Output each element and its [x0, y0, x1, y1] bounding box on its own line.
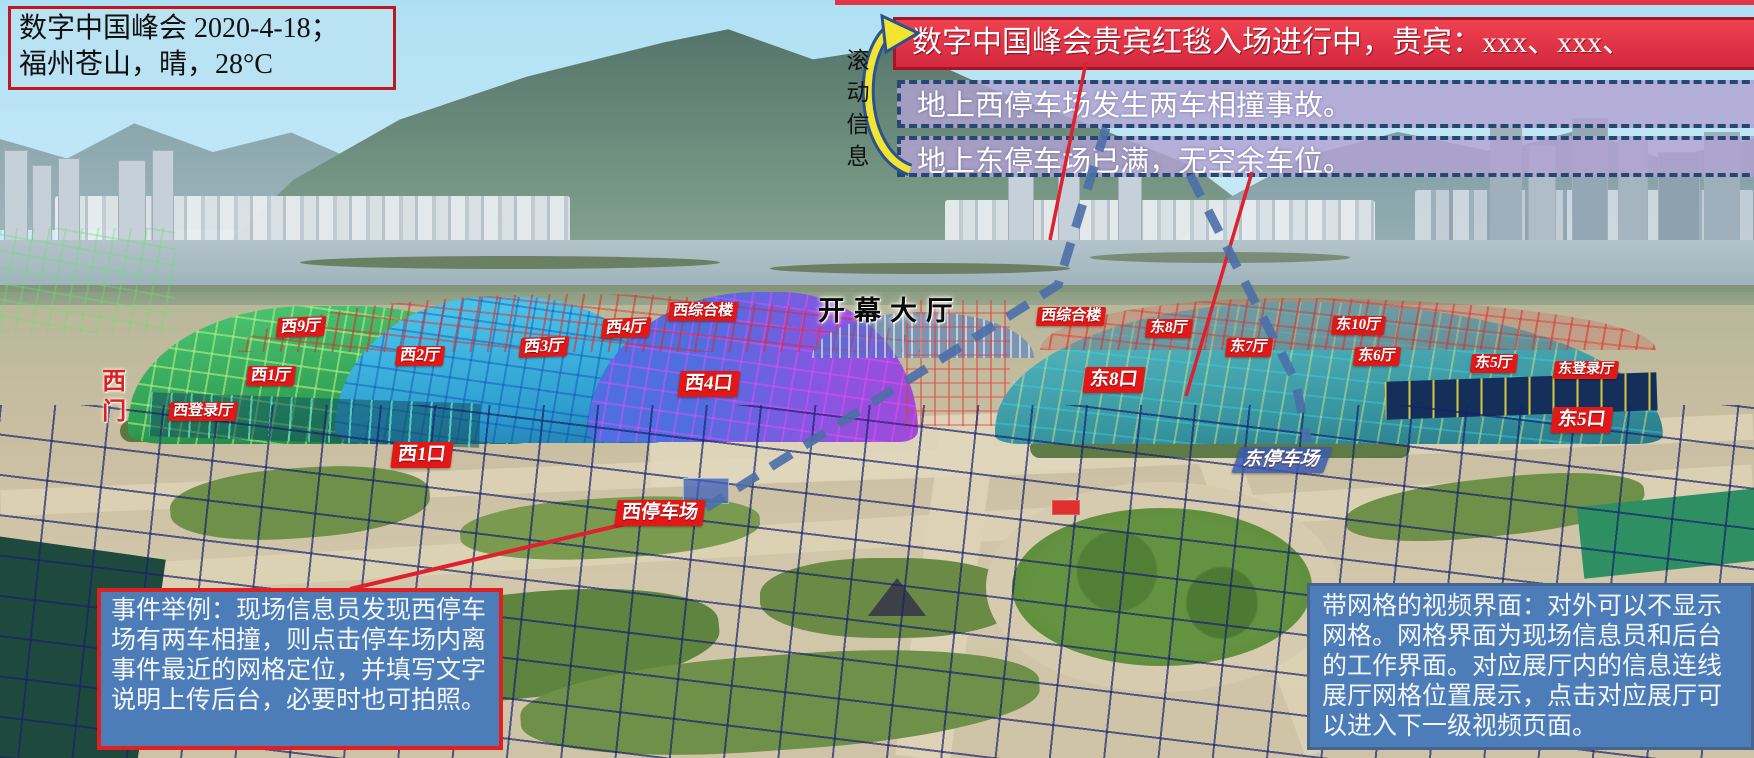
scrolling-info-label: 滚动信息 — [838, 48, 872, 176]
grid-note-callout: 带网格的视频界面：对外可以不显示网格。网格界面为现场信息员和后台的工作界面。对应… — [1307, 583, 1754, 750]
ticker-message-east-parking: 地上东停车场已满，无空余车位。 — [897, 136, 1754, 177]
hall-label-west-1[interactable]: 西1厅 — [246, 366, 297, 386]
building — [1008, 165, 1034, 251]
river-island — [770, 263, 1070, 274]
river-island — [1090, 252, 1350, 263]
gate-label-west-1[interactable]: 西1口 — [390, 442, 453, 468]
west-gate-label: 西门 — [96, 368, 124, 428]
west-parking-label[interactable]: 西停车场 — [614, 500, 705, 526]
ticker-message-text: 数字中国峰会贵宾红毯入场进行中，贵宾：xxx、xxx、 — [912, 26, 1632, 59]
video-monitor-page: 西9厅 西2厅 西1厅 西3厅 西4厅 西综合楼 西综合楼 开幕大厅 东8厅 东… — [0, 0, 1754, 758]
event-example-callout: 事件举例：现场信息员发现西停车场有两车相撞，则点击停车场内离事件最近的网格定位，… — [97, 588, 503, 750]
hall-label-east-7[interactable]: 东7厅 — [1225, 338, 1273, 357]
hall-label-east-6[interactable]: 东6厅 — [1353, 347, 1401, 366]
west-login-hall-label[interactable]: 西登录厅 — [168, 402, 238, 421]
summit-info-line2: 福州苍山，晴，28°C — [19, 47, 385, 83]
ticker-message-vip: 数字中国峰会贵宾红毯入场进行中，贵宾：xxx、xxx、 — [893, 17, 1754, 70]
river-island — [300, 256, 720, 269]
east-login-hall-label[interactable]: 东登录厅 — [1553, 361, 1619, 379]
event-example-text: 事件举例：现场信息员发现西停车场有两车相撞，则点击停车场内离事件最近的网格定位，… — [111, 597, 486, 714]
opening-hall-title: 开幕大厅 — [818, 296, 962, 327]
west-complex-label-left[interactable]: 西综合楼 — [668, 302, 738, 321]
hall-label-west-2[interactable]: 西2厅 — [395, 346, 446, 366]
summit-info-line1: 数字中国峰会 2020-4-18； — [19, 11, 385, 47]
green-grid-field — [0, 228, 175, 333]
gate-label-east-8[interactable]: 东8口 — [1082, 367, 1145, 393]
red-carpet-marker — [1052, 500, 1080, 515]
gate-label-east-5[interactable]: 东5口 — [1550, 407, 1613, 433]
summit-info-box: 数字中国峰会 2020-4-18； 福州苍山，晴，28°C — [8, 6, 396, 90]
hall-label-west-3[interactable]: 西3厅 — [518, 336, 569, 358]
hall-label-east-5[interactable]: 东5厅 — [1470, 354, 1518, 373]
hall-label-east-8[interactable]: 东8厅 — [1145, 319, 1193, 338]
ticker-message-text: 地上西停车场发生两车相撞事故。 — [917, 90, 1352, 122]
hall-label-west-4[interactable]: 西4厅 — [600, 317, 651, 339]
grid-note-text: 带网格的视频界面：对外可以不显示网格。网格界面为现场信息员和后台的工作界面。对应… — [1322, 593, 1722, 740]
hall-label-west-9[interactable]: 西9厅 — [276, 316, 327, 338]
hall-label-east-10[interactable]: 东10厅 — [1331, 316, 1386, 335]
ticker-message-text: 地上东停车场已满，无空余车位。 — [917, 146, 1352, 177]
top-red-strip — [835, 0, 1754, 5]
gate-label-west-4[interactable]: 西4口 — [677, 371, 740, 397]
building — [1118, 168, 1142, 250]
ticker-message-west-parking: 地上西停车场发生两车相撞事故。 — [897, 80, 1754, 128]
east-parking-label[interactable]: 东停车场 — [1231, 447, 1332, 473]
west-complex-label-right[interactable]: 西综合楼 — [1036, 307, 1106, 326]
